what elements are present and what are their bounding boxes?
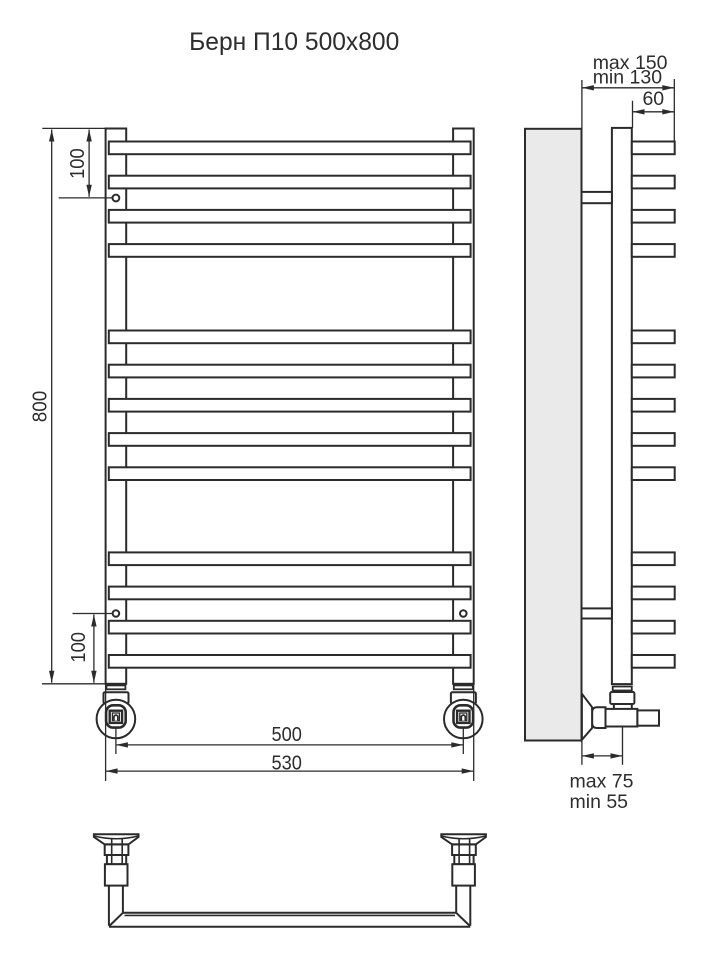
svg-text:100: 100	[67, 148, 89, 179]
svg-text:530: 530	[272, 753, 302, 775]
svg-text:min 130: min 130	[593, 67, 663, 89]
svg-text:100: 100	[68, 632, 90, 663]
svg-text:800: 800	[29, 391, 51, 423]
svg-text:Берн П10 500x800: Берн П10 500x800	[189, 29, 399, 56]
svg-text:60: 60	[642, 88, 664, 110]
svg-text:500: 500	[272, 724, 302, 746]
svg-text:max 75: max 75	[570, 770, 634, 792]
svg-text:min 55: min 55	[570, 791, 629, 813]
